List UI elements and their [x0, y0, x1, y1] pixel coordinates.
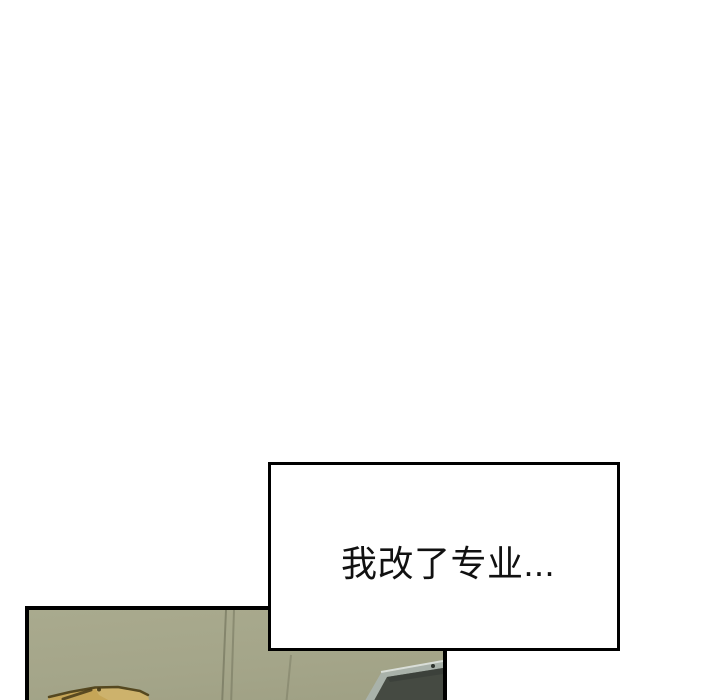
wall-seam-line	[222, 610, 226, 700]
wall-seam-line	[286, 655, 291, 700]
wall-seam-line	[231, 610, 234, 700]
cardboard-box-mark	[97, 688, 101, 692]
cardboard-box	[45, 687, 150, 700]
comic-page: 我改了专业...	[0, 0, 720, 700]
laptop	[362, 661, 443, 700]
speech-text: 我改了专业...	[341, 544, 555, 584]
speech-box: 我改了专业...	[268, 462, 620, 651]
laptop-hinge-notch	[431, 664, 435, 668]
